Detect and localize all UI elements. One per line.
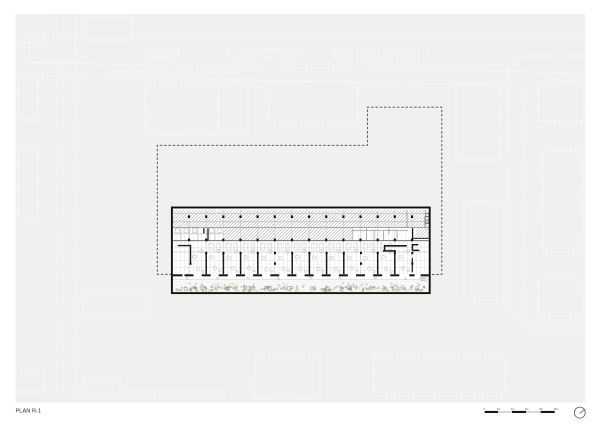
svg-text:10m: 10m: [554, 408, 559, 411]
svg-text:6m: 6m: [525, 408, 528, 411]
svg-text:PLAN R-1: PLAN R-1: [16, 408, 42, 414]
svg-text:2m: 2m: [497, 408, 500, 411]
svg-text:8m: 8m: [540, 408, 543, 411]
svg-text:4m: 4m: [511, 408, 514, 411]
